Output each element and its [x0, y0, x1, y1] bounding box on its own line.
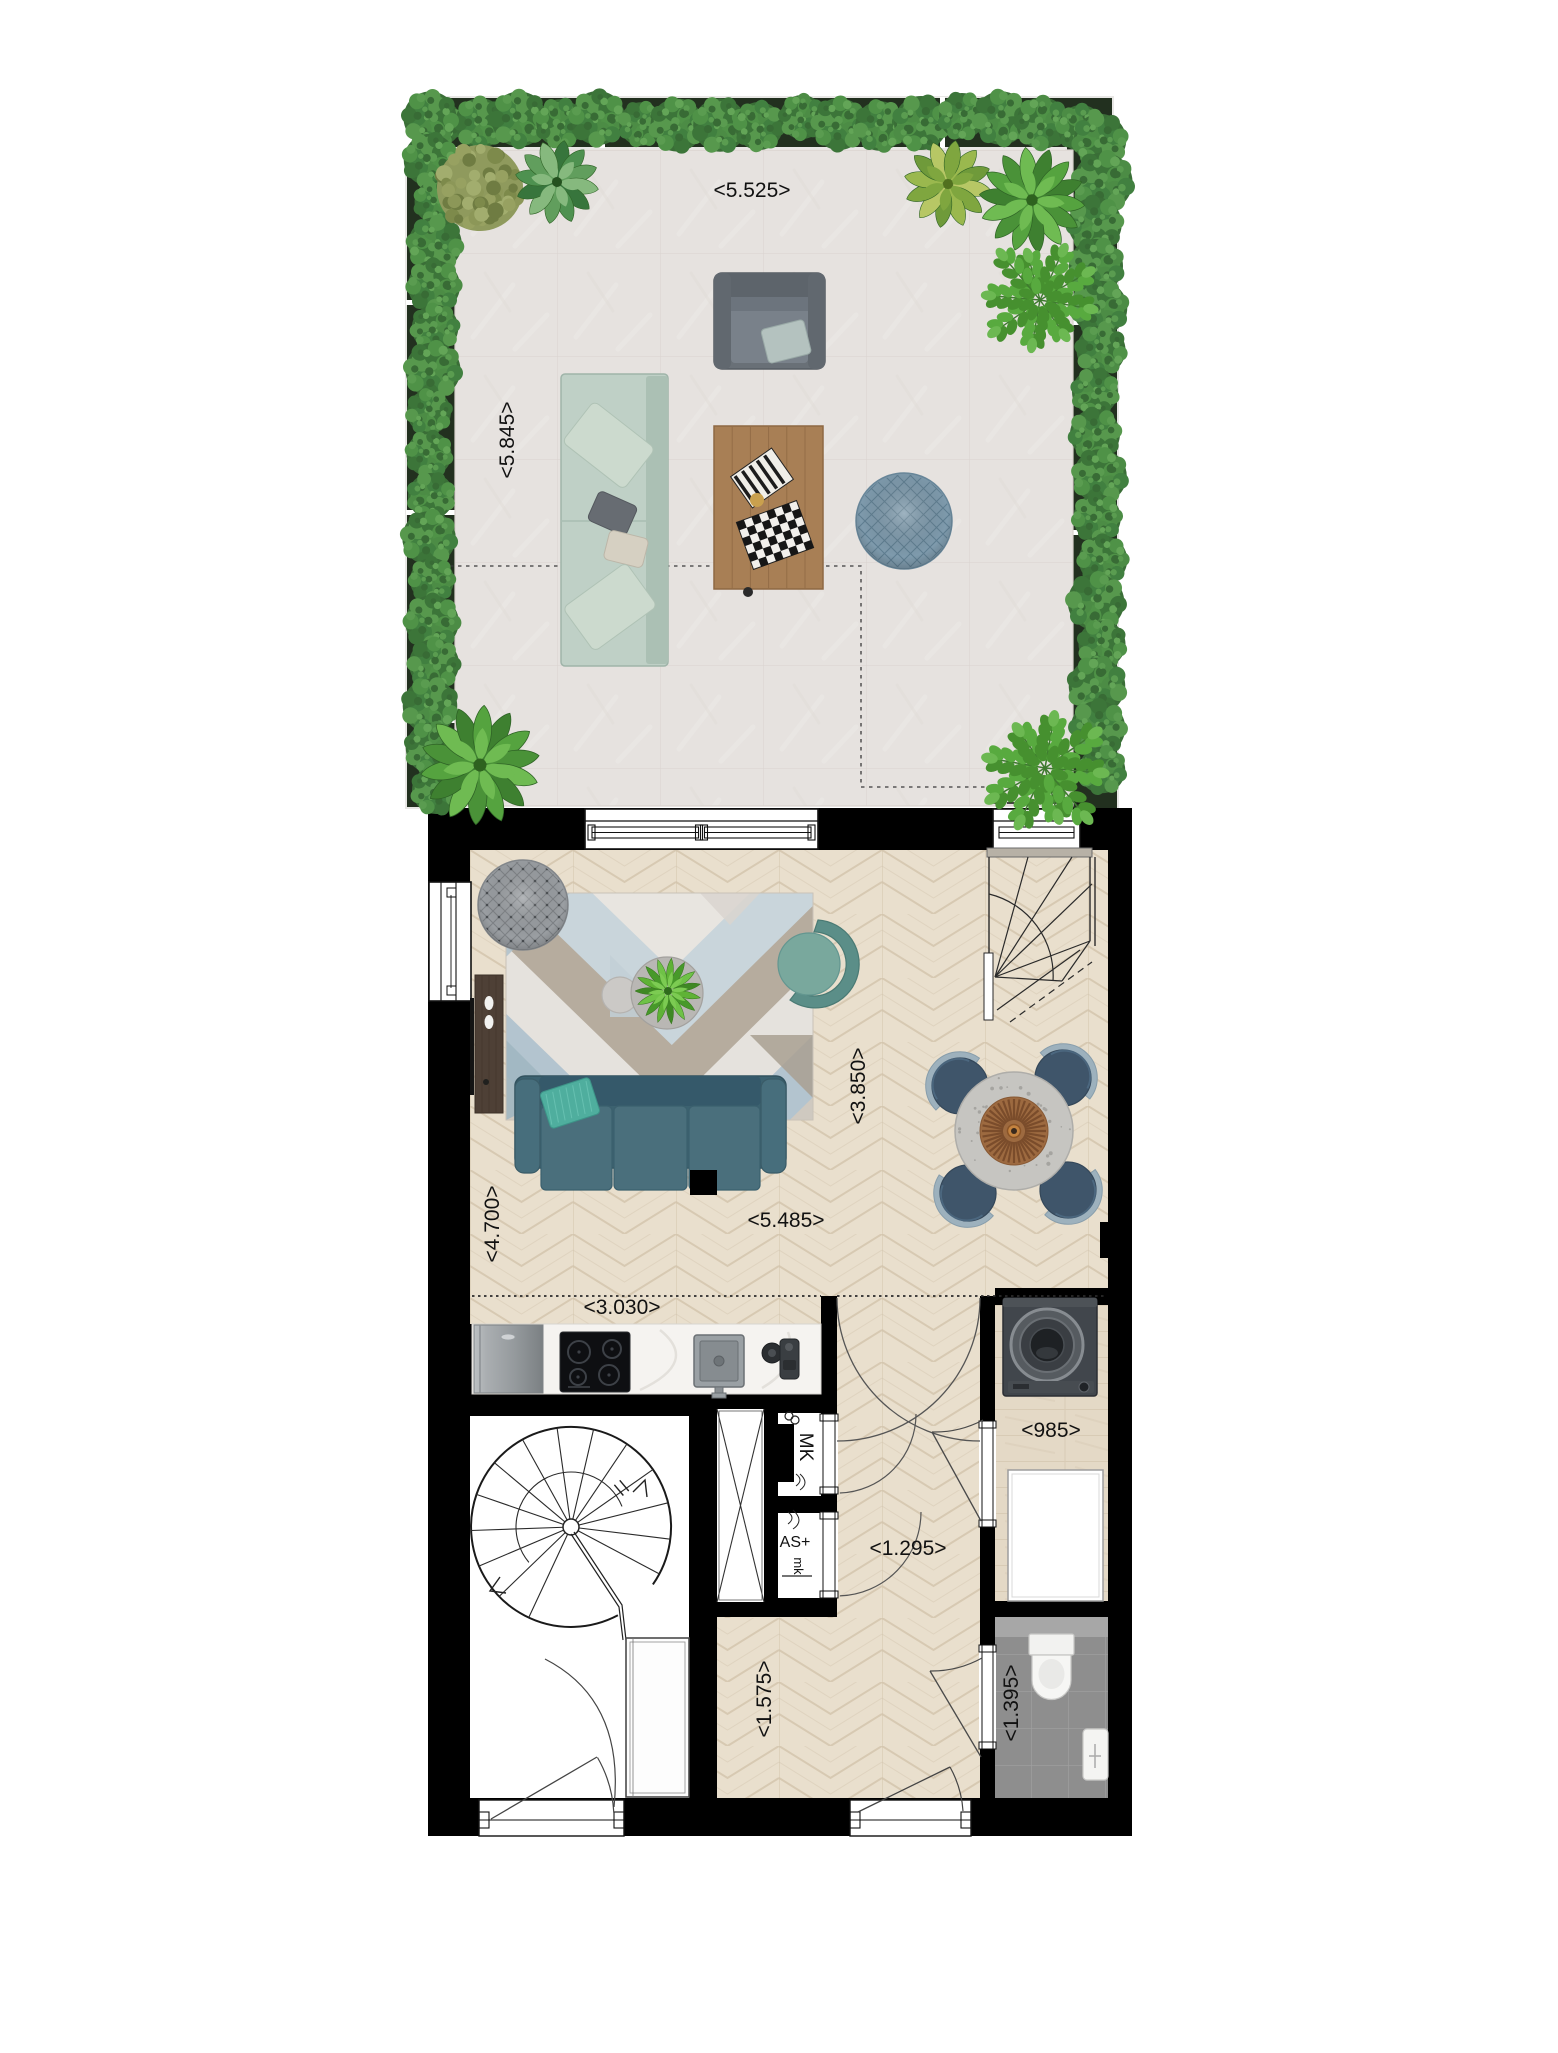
svg-text:<1.575>: <1.575>	[753, 1660, 776, 1737]
svg-text:<5.485>: <5.485>	[747, 1209, 824, 1232]
svg-text:<3.030>: <3.030>	[583, 1296, 660, 1319]
svg-text:<985>: <985>	[1021, 1419, 1081, 1442]
svg-text:AS+: AS+	[780, 1534, 811, 1551]
svg-text:<5.525>: <5.525>	[713, 179, 790, 202]
svg-text:<3.850>: <3.850>	[847, 1047, 870, 1124]
svg-text:mk: mk	[791, 1557, 806, 1575]
svg-text:<4.700>: <4.700>	[481, 1185, 504, 1262]
svg-text:<1.295>: <1.295>	[869, 1537, 946, 1560]
svg-text:<1.395>: <1.395>	[1000, 1664, 1023, 1741]
svg-text:<5.845>: <5.845>	[496, 401, 519, 478]
svg-text:MK: MK	[795, 1433, 816, 1462]
